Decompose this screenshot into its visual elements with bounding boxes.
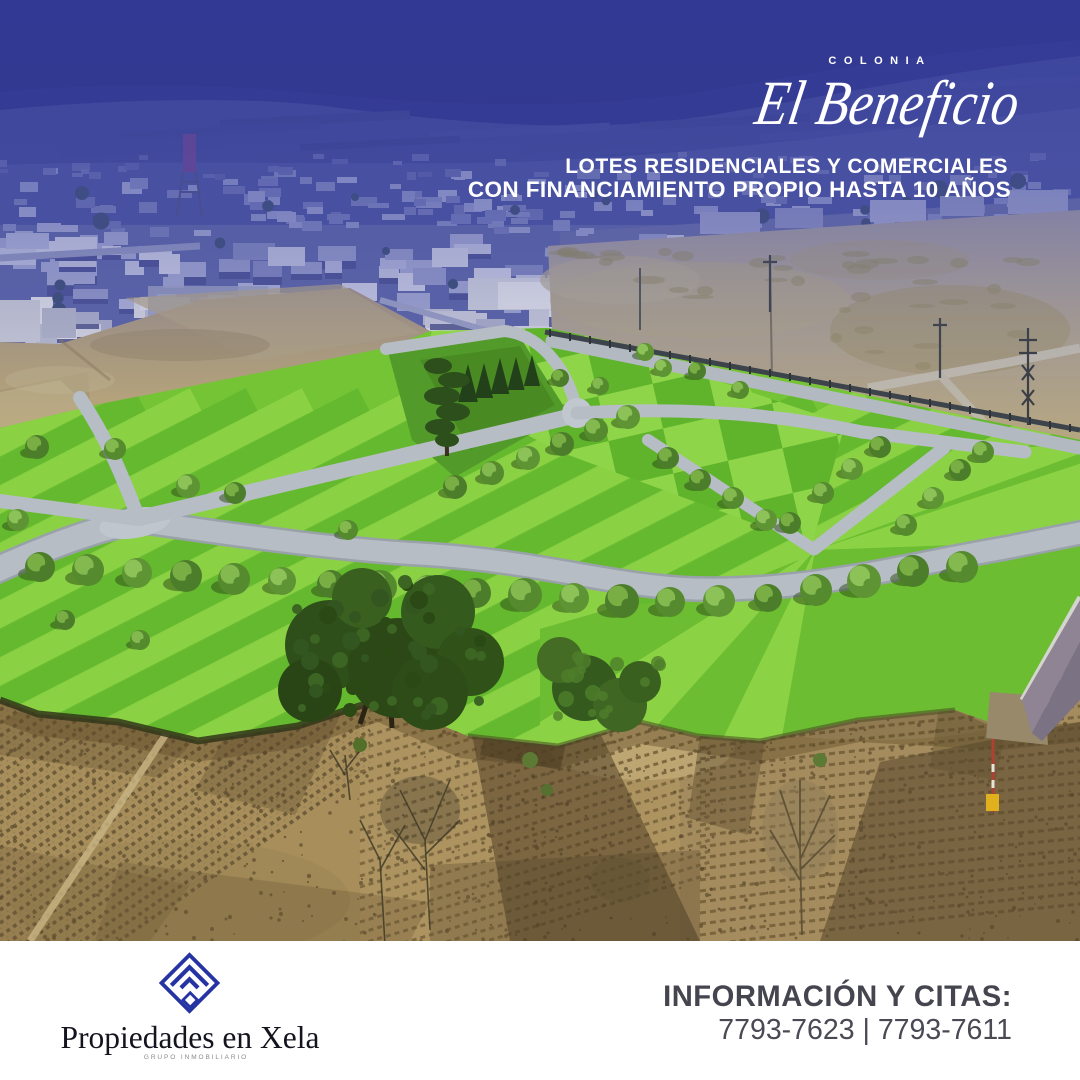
svg-text:LOTES RESIDENCIALES Y COMERCIA: LOTES RESIDENCIALES Y COMERCIALES	[565, 155, 1008, 178]
svg-text:El Beneficio: El Beneficio	[750, 67, 1025, 137]
svg-text:INFORMACIÓN Y CITAS:: INFORMACIÓN Y CITAS:	[663, 979, 1012, 1013]
svg-text:COLONIA: COLONIA	[828, 55, 931, 67]
svg-text:GRUPO INMOBILIARIO: GRUPO INMOBILIARIO	[144, 1054, 248, 1061]
svg-text:7793-7623 | 7793-7611: 7793-7623 | 7793-7611	[718, 1014, 1012, 1046]
svg-text:CON FINANCIAMIENTO PROPIO HAST: CON FINANCIAMIENTO PROPIO HASTA 10 AÑOS	[468, 177, 1011, 202]
svg-text:Propiedades en Xela: Propiedades en Xela	[61, 1020, 320, 1055]
